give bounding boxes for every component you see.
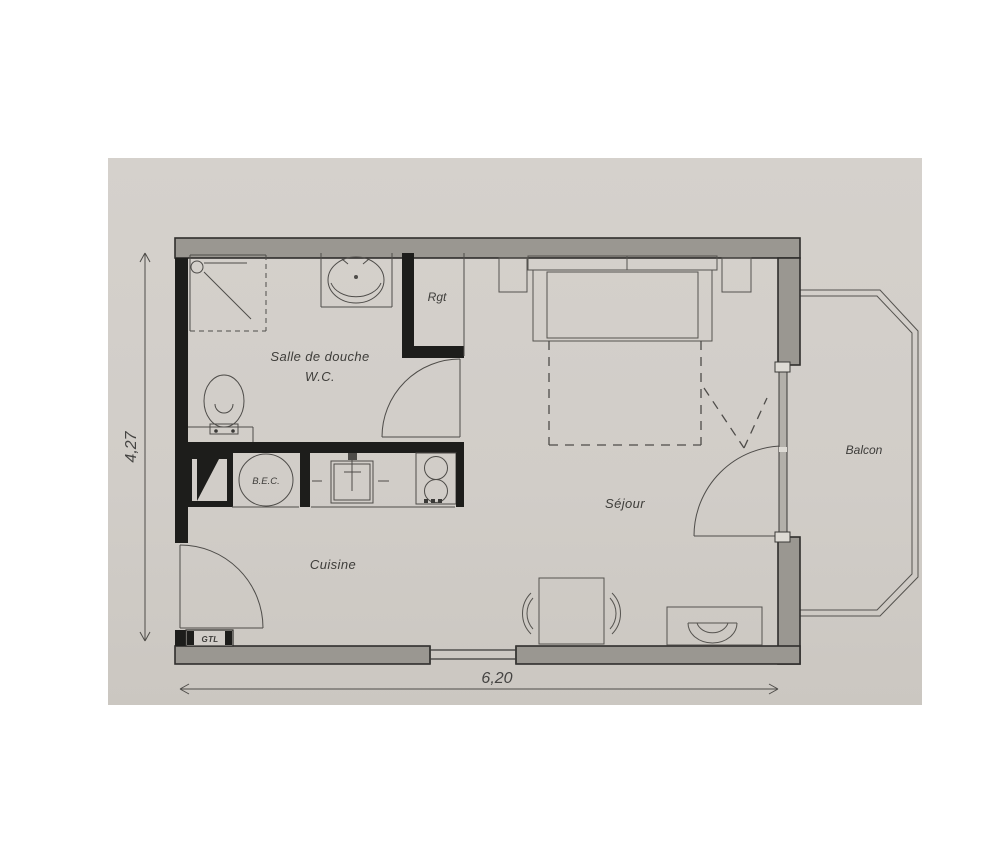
- dim-height-label: 4,27: [123, 430, 140, 462]
- toilet-bolt-right: [231, 429, 235, 433]
- glazing-end-top: [775, 362, 790, 372]
- wall-right-upper: [778, 258, 800, 365]
- utility-box-label: GTL: [202, 635, 219, 644]
- floorplan-drawing: Balcon: [0, 0, 1000, 857]
- glazing-middle-joint: [779, 447, 787, 452]
- bathroom-label-line2: W.C.: [305, 369, 335, 384]
- wall-bottom-right: [516, 646, 800, 664]
- counter-divider-wall: [300, 453, 310, 507]
- wall-bottom-left: [175, 646, 430, 664]
- glazing-end-bottom: [775, 532, 790, 542]
- utility-box-cap-left: [187, 631, 194, 645]
- cooktop-knob-1: [424, 499, 428, 503]
- living-room-label: Séjour: [605, 496, 645, 511]
- kitchen-wall-top: [188, 442, 464, 453]
- cooktop-knob-2: [431, 499, 435, 503]
- bathroom-label-line1: Salle de douche: [270, 349, 369, 364]
- wall-right-lower: [778, 537, 800, 664]
- storage-label: Rgt: [428, 290, 447, 304]
- storage-wall-left: [402, 253, 414, 352]
- counter-right-wall: [456, 453, 464, 507]
- screenshot-canvas: Balcon: [0, 0, 1000, 857]
- dim-width-label: 6,20: [481, 670, 512, 687]
- storage-wall-bottom: [402, 346, 464, 358]
- washbasin-drain: [354, 275, 358, 279]
- cooktop-knob-3: [438, 499, 442, 503]
- kitchen-faucet-base: [348, 453, 357, 460]
- water-heater-label: B.E.C.: [252, 476, 279, 487]
- toilet-bolt-left: [214, 429, 218, 433]
- wall-top: [175, 238, 800, 258]
- balcony-label: Balcon: [846, 443, 883, 457]
- utility-box-cap-right: [225, 631, 232, 645]
- kitchen-label: Cuisine: [310, 557, 356, 572]
